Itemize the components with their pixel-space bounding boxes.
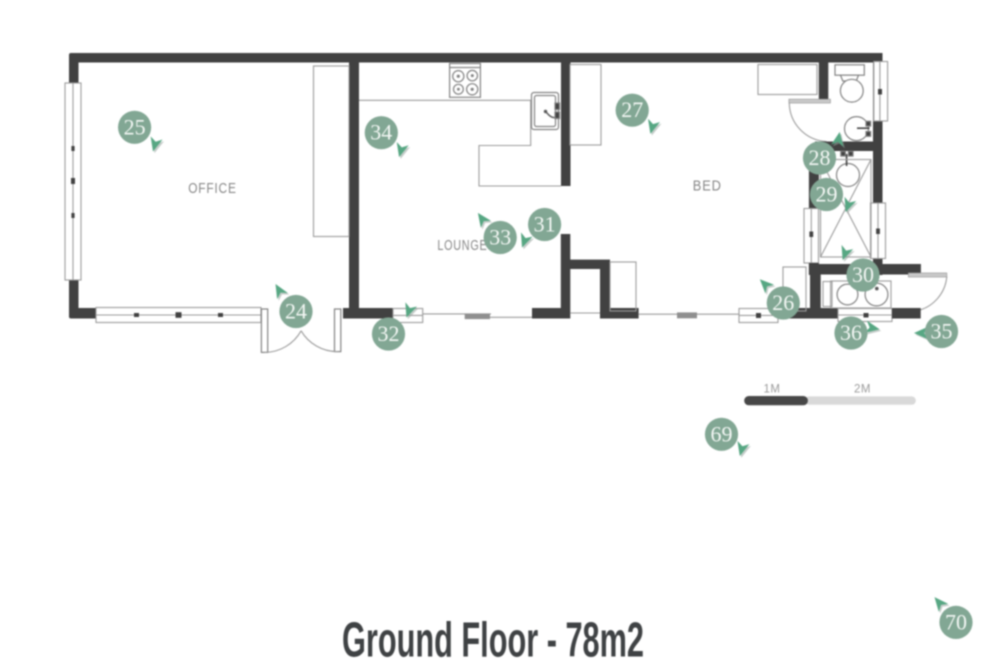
- svg-text:24: 24: [285, 299, 307, 324]
- svg-text:OFFICE: OFFICE: [188, 180, 237, 197]
- svg-text:Ground Floor - 78m2: Ground Floor - 78m2: [342, 614, 644, 667]
- svg-text:70: 70: [945, 609, 967, 634]
- svg-text:33: 33: [489, 225, 511, 250]
- svg-text:28: 28: [809, 145, 831, 170]
- svg-text:29: 29: [816, 182, 838, 207]
- svg-text:LOUNGE: LOUNGE: [437, 237, 487, 254]
- svg-text:30: 30: [852, 262, 874, 287]
- svg-text:32: 32: [378, 321, 400, 346]
- svg-text:35: 35: [931, 319, 953, 344]
- svg-text:26: 26: [772, 290, 794, 315]
- svg-text:69: 69: [711, 421, 733, 446]
- svg-text:2M: 2M: [854, 384, 871, 396]
- svg-text:36: 36: [840, 320, 862, 345]
- svg-text:BED: BED: [693, 178, 722, 195]
- svg-text:27: 27: [621, 97, 643, 122]
- svg-text:31: 31: [534, 212, 556, 237]
- svg-text:1M: 1M: [764, 384, 781, 396]
- svg-text:34: 34: [370, 120, 392, 145]
- svg-text:25: 25: [124, 114, 146, 139]
